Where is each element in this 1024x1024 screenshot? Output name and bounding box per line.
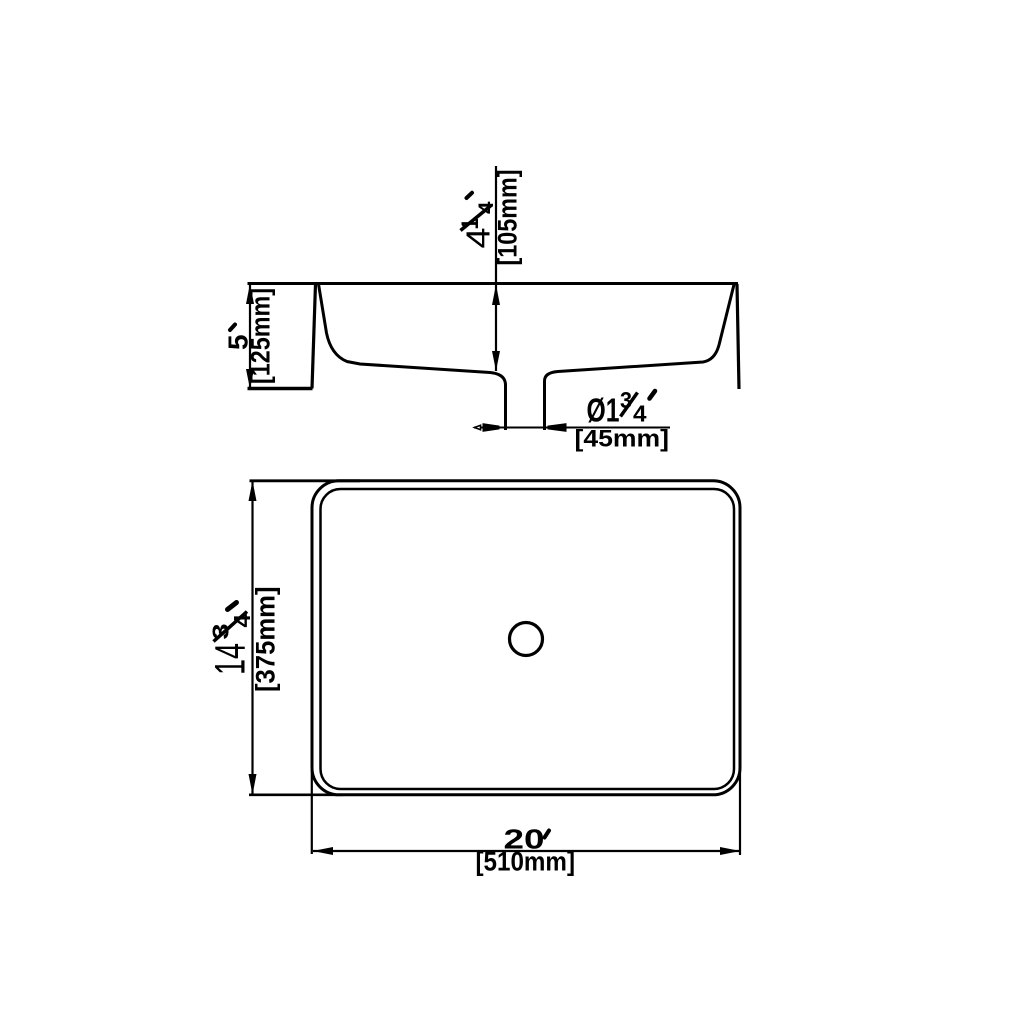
- svg-text:4: 4: [460, 228, 497, 249]
- svg-text:[105mm]: [105mm]: [493, 170, 523, 266]
- svg-text:[375mm]: [375mm]: [251, 587, 281, 693]
- svg-text:14: 14: [207, 643, 255, 675]
- svg-text:[125mm]: [125mm]: [246, 288, 276, 384]
- svg-text:Ø1: Ø1: [587, 392, 620, 429]
- svg-text:[510mm]: [510mm]: [476, 847, 576, 877]
- svg-text:[45mm]: [45mm]: [575, 426, 670, 453]
- svg-text:4: 4: [633, 401, 647, 427]
